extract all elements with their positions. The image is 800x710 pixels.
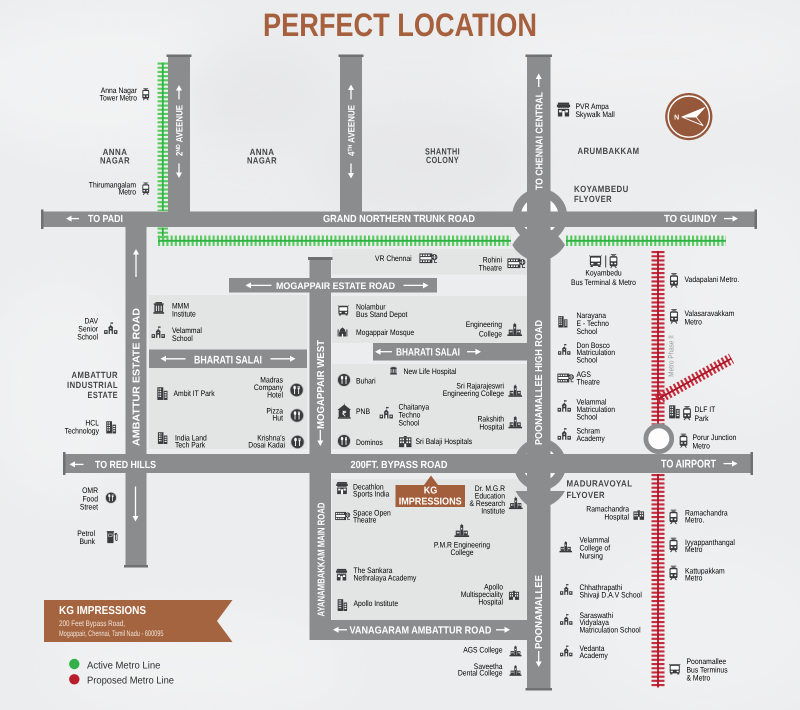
svg-text:Bus Terminal & Metro: Bus Terminal & Metro [571, 278, 636, 287]
svg-text:Mogappair Mosque: Mogappair Mosque [356, 328, 415, 337]
svg-text:MADURAVOYAL: MADURAVOYAL [567, 479, 633, 489]
svg-text:Street: Street [80, 503, 99, 512]
svg-text:Hospital: Hospital [479, 423, 504, 432]
svg-text:Metro.: Metro. [685, 516, 704, 525]
svg-text:Engineering: Engineering [466, 320, 502, 329]
svg-text:Institute: Institute [481, 507, 505, 516]
svg-text:Mogappair, Chennai, Tamil Nadu: Mogappair, Chennai, Tamil Nadu - 600095 [59, 629, 164, 638]
svg-text:Ambit IT Park: Ambit IT Park [174, 389, 216, 398]
svg-text:Metro: Metro [685, 318, 703, 327]
svg-text:Hospital: Hospital [604, 513, 629, 522]
svg-text:Metro: Metro [685, 545, 703, 554]
svg-text:School: School [399, 419, 420, 428]
svg-text:COLONY: COLONY [426, 155, 459, 165]
svg-text:TO AIRPORT: TO AIRPORT [661, 459, 716, 471]
svg-text:Koyambedu: Koyambedu [585, 269, 621, 278]
svg-text:AMBATTUR ESTATE ROAD: AMBATTUR ESTATE ROAD [132, 308, 143, 446]
svg-text:School: School [577, 355, 598, 364]
svg-text:GRAND NORTHERN TRUNK ROAD: GRAND NORTHERN TRUNK ROAD [323, 214, 475, 225]
svg-text:PERFECT LOCATION: PERFECT LOCATION [263, 7, 537, 43]
svg-text:TO GUINDY: TO GUINDY [664, 214, 717, 225]
svg-text:Theatre: Theatre [577, 378, 601, 387]
svg-text:KG IMPRESSIONS: KG IMPRESSIONS [59, 605, 146, 617]
svg-text:200 Feet Bypass Road,: 200 Feet Bypass Road, [59, 619, 125, 628]
svg-text:Tech Park: Tech Park [175, 441, 206, 450]
svg-text:ARUMBAKKAM: ARUMBAKKAM [578, 146, 640, 156]
svg-text:Proposed Metro Line: Proposed Metro Line [87, 676, 174, 687]
svg-text:AYANAMBAKKAM MAIN ROAD: AYANAMBAKKAM MAIN ROAD [316, 503, 327, 617]
svg-text:Tower Metro: Tower Metro [100, 94, 138, 103]
svg-text:Metro: Metro [693, 442, 711, 451]
svg-text:FLYOVER: FLYOVER [567, 490, 606, 500]
svg-text:Theatre: Theatre [479, 264, 503, 273]
svg-text:Park: Park [695, 414, 710, 423]
svg-text:Apollo Institute: Apollo Institute [354, 599, 399, 608]
svg-text:N: N [674, 115, 679, 122]
svg-text:Metro: Metro [119, 188, 137, 197]
svg-text:MOGAPPAIR WEST: MOGAPPAIR WEST [316, 340, 327, 429]
svg-text:& Metro: & Metro [687, 673, 711, 682]
svg-text:DLF IT: DLF IT [695, 405, 716, 414]
svg-text:Nursing: Nursing [580, 552, 603, 561]
svg-text:Metro Phase II: Metro Phase II [667, 335, 676, 377]
svg-text:KOYAMBEDU: KOYAMBEDU [574, 184, 629, 194]
svg-text:School: School [172, 334, 193, 343]
svg-text:Sports India: Sports India [353, 490, 390, 499]
svg-text:ESTATE: ESTATE [88, 390, 119, 400]
svg-text:Hut: Hut [272, 414, 283, 423]
svg-text:VANAGARAM AMBATTUR ROAD: VANAGARAM AMBATTUR ROAD [350, 626, 492, 637]
svg-text:TO RED HILLS: TO RED HILLS [95, 460, 156, 471]
svg-text:Vadapalani Metro.: Vadapalani Metro. [685, 275, 740, 284]
svg-text:NAGAR: NAGAR [100, 156, 130, 166]
svg-text:TO CHENNAI CENTRAL: TO CHENNAI CENTRAL [534, 92, 545, 190]
svg-text:Buhari: Buhari [356, 377, 376, 386]
svg-text:School: School [577, 327, 598, 336]
svg-text:IMPRESSIONS: IMPRESSIONS [399, 497, 462, 508]
svg-text:KG: KG [424, 486, 438, 497]
svg-text:College: College [479, 330, 503, 339]
svg-text:Nethralaya Academy: Nethralaya Academy [354, 574, 417, 583]
svg-text:Bunk: Bunk [80, 537, 96, 546]
svg-text:Hospital: Hospital [478, 598, 503, 607]
svg-text:Technology: Technology [65, 427, 99, 436]
svg-text:200FT. BYPASS ROAD: 200FT. BYPASS ROAD [351, 460, 448, 471]
svg-text:INDUSTRIAL: INDUSTRIAL [67, 380, 118, 390]
svg-text:POONAMALLEE HIGH ROAD: POONAMALLEE HIGH ROAD [534, 320, 545, 445]
svg-text:Academy: Academy [580, 651, 608, 660]
svg-text:Bus Stand Depot: Bus Stand Depot [356, 310, 408, 319]
svg-text:TO PADI: TO PADI [88, 214, 123, 225]
svg-text:Matriculation School: Matriculation School [580, 625, 641, 634]
svg-text:Active Metro Line: Active Metro Line [87, 660, 161, 671]
svg-text:AMBATTUR: AMBATTUR [72, 370, 119, 380]
svg-text:Theatre: Theatre [353, 516, 377, 525]
svg-text:POONAMALLEE: POONAMALLEE [534, 575, 545, 649]
svg-text:NAGAR: NAGAR [247, 156, 277, 166]
svg-text:AGS College: AGS College [463, 646, 503, 655]
svg-text:Metro: Metro [685, 574, 703, 583]
svg-text:Dosai Kadai: Dosai Kadai [248, 441, 285, 450]
svg-text:College: College [450, 548, 474, 557]
svg-text:Institute: Institute [172, 309, 196, 318]
svg-text:Skywalk Mall: Skywalk Mall [576, 110, 615, 119]
svg-text:PNB: PNB [356, 407, 370, 416]
svg-text:New Life Hospital: New Life Hospital [404, 367, 457, 376]
svg-text:FLYOVER: FLYOVER [574, 194, 612, 204]
svg-text:Sri Balaji Hospitals: Sri Balaji Hospitals [416, 437, 473, 446]
svg-text:MOGAPPAIR ESTATE ROAD: MOGAPPAIR ESTATE ROAD [276, 281, 395, 292]
svg-text:Hotel: Hotel [267, 391, 283, 400]
svg-text:School: School [577, 413, 598, 422]
svg-text:School: School [77, 333, 98, 342]
svg-text:Engineering College: Engineering College [443, 389, 505, 398]
svg-text:BHARATI SALAI: BHARATI SALAI [396, 346, 460, 358]
svg-text:Academy: Academy [577, 434, 605, 443]
svg-text:Dental College: Dental College [458, 669, 503, 678]
svg-text:Dominos: Dominos [356, 438, 383, 447]
svg-text:BHARATI SALAI: BHARATI SALAI [194, 355, 262, 367]
svg-text:Shivaji D.A.V School: Shivaji D.A.V School [580, 590, 643, 599]
svg-text:VR Chennai: VR Chennai [375, 254, 412, 263]
